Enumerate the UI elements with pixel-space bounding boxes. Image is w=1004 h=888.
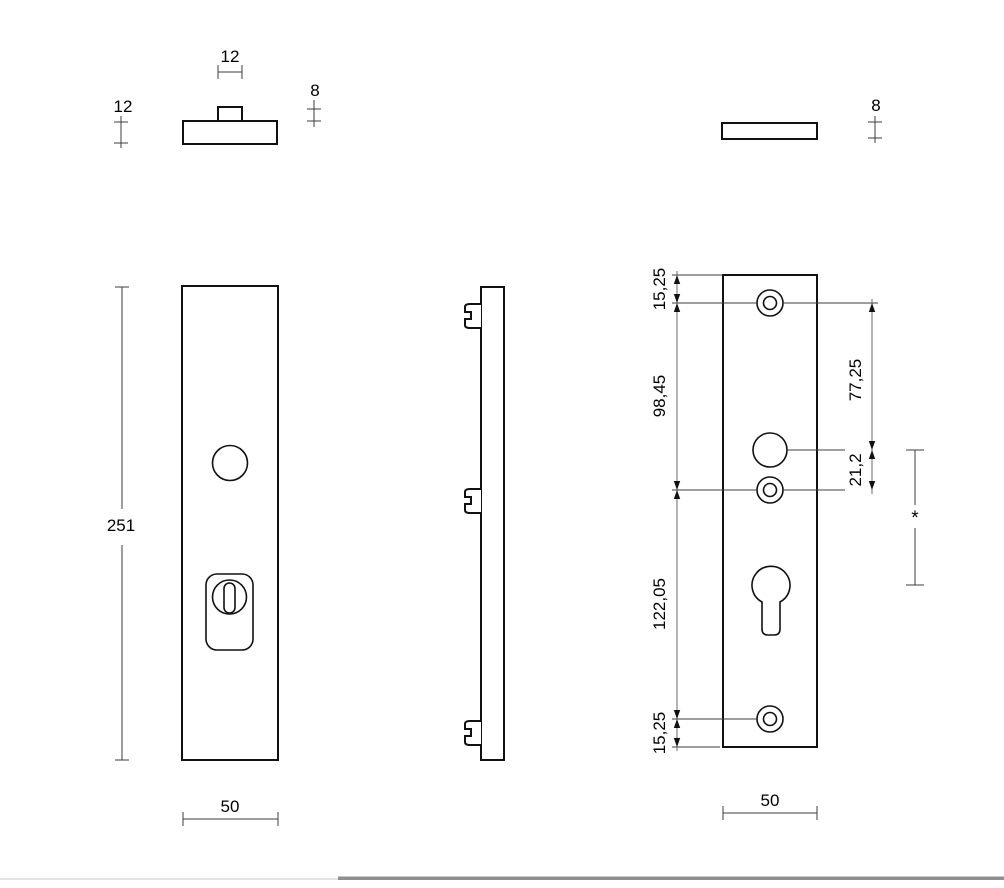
dim-plate-thickness: 8 xyxy=(868,96,882,143)
fixing-clip-bottom xyxy=(465,721,481,745)
plate-outline xyxy=(183,121,277,144)
dim-plate-width: 50 xyxy=(183,797,278,826)
dim-lower-span-label: 122,05 xyxy=(650,578,669,630)
dim-bottom-margin-label: 15,25 xyxy=(650,712,669,755)
security-rosette xyxy=(206,574,253,650)
dim-plate-width-label: 50 xyxy=(221,797,240,816)
page-boundary xyxy=(0,877,1004,881)
dim-plate-width-label: 50 xyxy=(761,791,780,810)
dim-plate-thickness-label: 8 xyxy=(871,96,880,115)
top-view-flat-plate: 8 xyxy=(722,96,882,143)
plate-outline xyxy=(723,275,817,747)
front-view: 251 50 xyxy=(107,286,278,826)
dim-chain-right: 77,25 21,2 xyxy=(846,299,875,494)
top-view-security-plate: 12 12 8 xyxy=(114,47,321,148)
technical-drawing: 12 12 8 8 xyxy=(0,0,1004,888)
page-edge-dark xyxy=(338,877,1004,881)
back-view: 15,25 98,45 122,05 15,25 77,25 21,2 * xyxy=(650,268,924,820)
dim-top-margin-label: 15,25 xyxy=(650,268,669,311)
side-view xyxy=(465,287,504,760)
plate-outline xyxy=(481,287,504,760)
dim-handle-offset-label: 77,25 xyxy=(846,359,865,402)
dim-boss-width-label: 12 xyxy=(221,47,240,66)
dim-boss-height: 8 xyxy=(307,81,321,127)
dim-plate-width: 50 xyxy=(723,791,817,820)
dim-variable-label: * xyxy=(911,508,919,529)
boss-outline xyxy=(218,107,242,121)
dim-plate-thickness: 12 xyxy=(114,97,133,148)
dim-plate-height-label: 251 xyxy=(107,516,135,535)
dim-chain-left: 15,25 98,45 122,05 15,25 xyxy=(650,268,680,755)
dim-boss-height-label: 8 xyxy=(310,81,319,100)
plate-outline xyxy=(722,123,817,139)
drawing-canvas: 12 12 8 8 xyxy=(0,0,1004,888)
dim-boss-width: 12 xyxy=(218,47,242,79)
dim-upper-span-label: 98,45 xyxy=(650,375,669,418)
dim-plate-thickness-label: 12 xyxy=(114,97,133,116)
page-edge-light xyxy=(0,878,338,880)
dim-variable: * xyxy=(906,450,924,585)
plate-outline xyxy=(182,286,278,760)
fixing-clip-top xyxy=(465,304,481,328)
fixing-clip-middle xyxy=(465,489,481,513)
dim-plate-height: 251 xyxy=(107,287,135,760)
dim-handle-to-hole-label: 21,2 xyxy=(846,453,865,486)
